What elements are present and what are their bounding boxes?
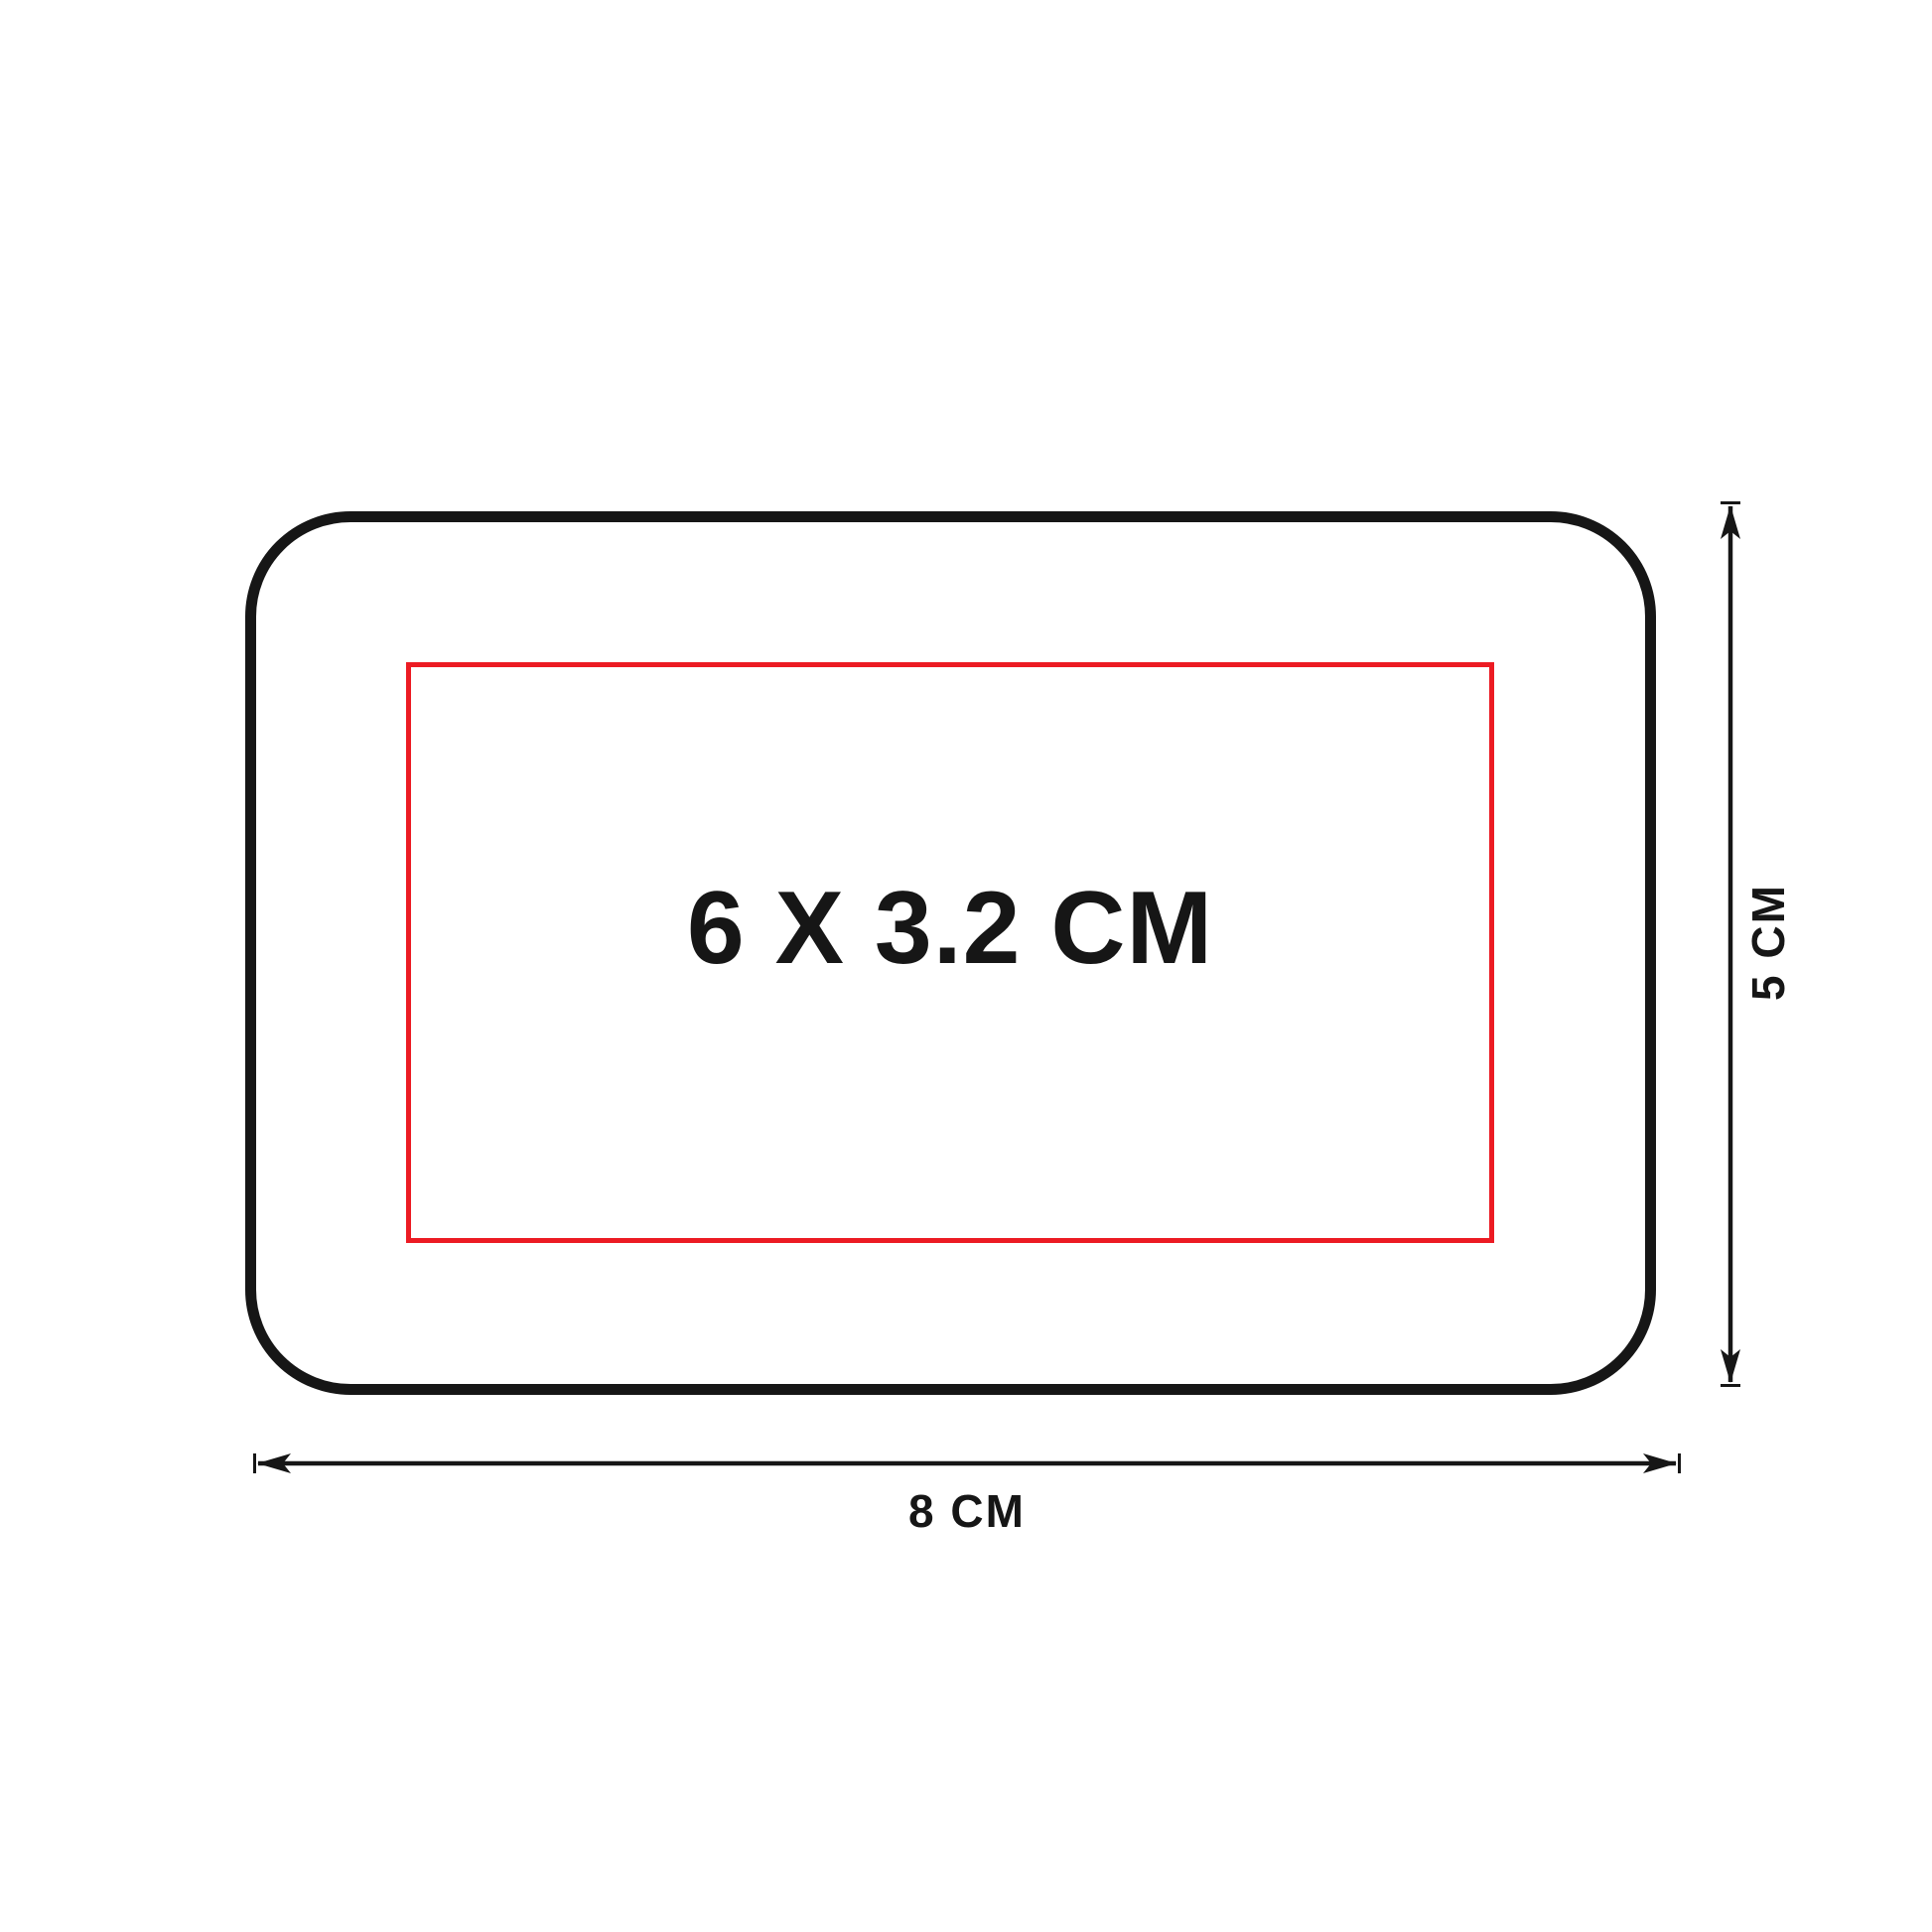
print-area-size-label: 6 X 3.2 CM xyxy=(687,870,1213,988)
width-dimension-label: 8 CM xyxy=(908,1484,1026,1538)
diagram-canvas: 6 X 3.2 CM 5 CM 8 CM xyxy=(0,0,1932,1932)
height-dimension-label: 5 CM xyxy=(1741,884,1795,1001)
width-dimension-arrow xyxy=(252,1442,1682,1485)
print-area-rectangle: 6 X 3.2 CM xyxy=(406,662,1494,1243)
